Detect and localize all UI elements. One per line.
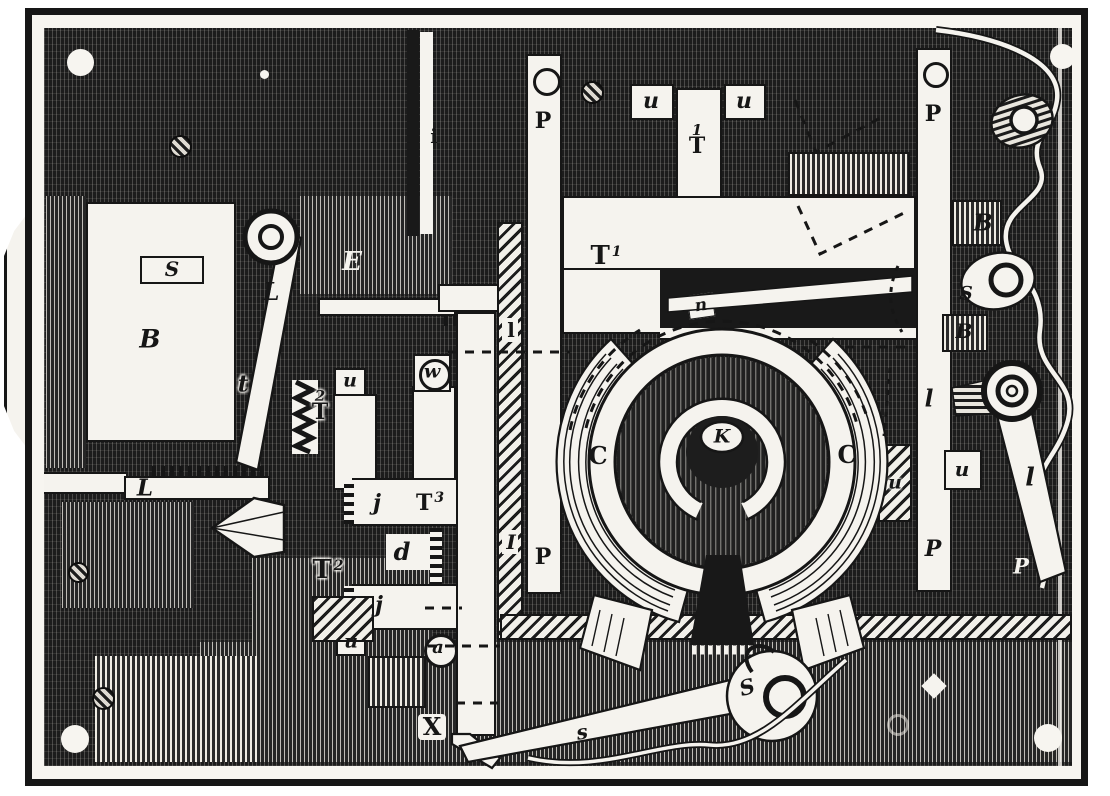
label-c-right: C <box>837 443 856 467</box>
screw-topleft <box>169 135 192 158</box>
label-t1-base: T <box>590 243 609 269</box>
label-t3-sup: 3 <box>434 491 444 505</box>
pawl-left <box>580 595 652 670</box>
label-b-right-lower: B <box>956 321 973 341</box>
label-l-lever-right: l <box>1025 465 1035 490</box>
label-t3: T 3 <box>416 492 444 514</box>
label-j-lower: j <box>375 594 383 616</box>
lever-pivot-inner <box>260 226 282 248</box>
label-t2-lower-base: T <box>312 557 331 583</box>
label-t3-base: T <box>416 492 432 514</box>
label-c-left: C <box>588 444 607 468</box>
label-a-roller: a <box>432 639 444 657</box>
label-rail-top: l <box>507 320 515 340</box>
screw-bottomleft <box>92 687 115 710</box>
screw-top-center <box>581 81 604 104</box>
label-p-right-italic: P <box>1013 556 1029 577</box>
label-t2-lower: T 2 <box>312 557 343 583</box>
label-u-right-hatch: u <box>888 474 902 493</box>
label-t2-lower-sup: 2 <box>334 559 344 573</box>
corner-hole-bottomleft <box>61 725 89 753</box>
faint-ring-bottomright <box>887 714 909 736</box>
label-u-top-right: u <box>736 90 752 112</box>
label-t1: T 1 <box>590 243 621 269</box>
small-dot <box>260 70 269 79</box>
label-t1-sup: 1 <box>612 245 622 259</box>
funnel-wedge <box>212 498 284 557</box>
label-b-magnet: B <box>139 327 160 352</box>
label-e-frame: E <box>342 249 362 275</box>
label-l-lever: L <box>263 280 280 304</box>
label-n-pawl: n <box>694 297 709 316</box>
label-l-right-box: l <box>925 388 934 411</box>
label-s-right: S <box>959 285 973 304</box>
pawl-right <box>792 595 864 670</box>
corner-hole-topright <box>1050 44 1075 69</box>
label-t-top: 1 T <box>689 123 705 157</box>
label-t2-upper-base: T <box>312 401 328 423</box>
label-x-bar: X <box>423 715 442 739</box>
label-u-mid: u <box>343 372 357 391</box>
label-t-top-base: T <box>689 135 705 157</box>
label-p-left-bottom: P <box>535 546 552 568</box>
label-u-right-white: u <box>955 459 970 479</box>
label-b-right-upper: B <box>973 212 992 235</box>
label-t2-upper: 2 T <box>312 389 328 423</box>
label-d-rack: d <box>394 540 411 564</box>
corner-hole-topleft <box>67 49 94 76</box>
screw-midleft <box>68 562 89 583</box>
label-i-slot: i <box>430 126 438 146</box>
corner-hole-bottomright <box>1034 724 1062 752</box>
label-j-upper: j <box>373 492 381 514</box>
label-p-right-top: P <box>925 103 942 125</box>
label-rail-bottom: I <box>506 532 515 552</box>
label-u-top-left: u <box>643 90 659 112</box>
bottom-lever-bar <box>460 678 752 762</box>
lever-l-arm <box>236 230 301 470</box>
label-u-boxed: u <box>344 633 358 652</box>
label-l-bar: L <box>137 477 153 500</box>
label-s-magnet: S <box>165 259 179 279</box>
key-middle-hole <box>991 265 1021 295</box>
eyelet-upper-hole <box>1011 107 1037 133</box>
label-k-hub: K <box>714 428 731 447</box>
label-w-roller: w <box>424 363 440 382</box>
engraving-figure: P P u u 1 T i E S B L t 2 T u w j T 3 d … <box>0 0 1110 796</box>
label-t-lever: t <box>238 373 249 396</box>
lever-right-head-center <box>1007 386 1017 396</box>
lever-right-tail <box>996 404 1066 582</box>
label-p-left-top: P <box>535 110 552 132</box>
parts-overlay <box>0 0 1110 796</box>
label-p-right-bottom: P <box>925 538 942 560</box>
